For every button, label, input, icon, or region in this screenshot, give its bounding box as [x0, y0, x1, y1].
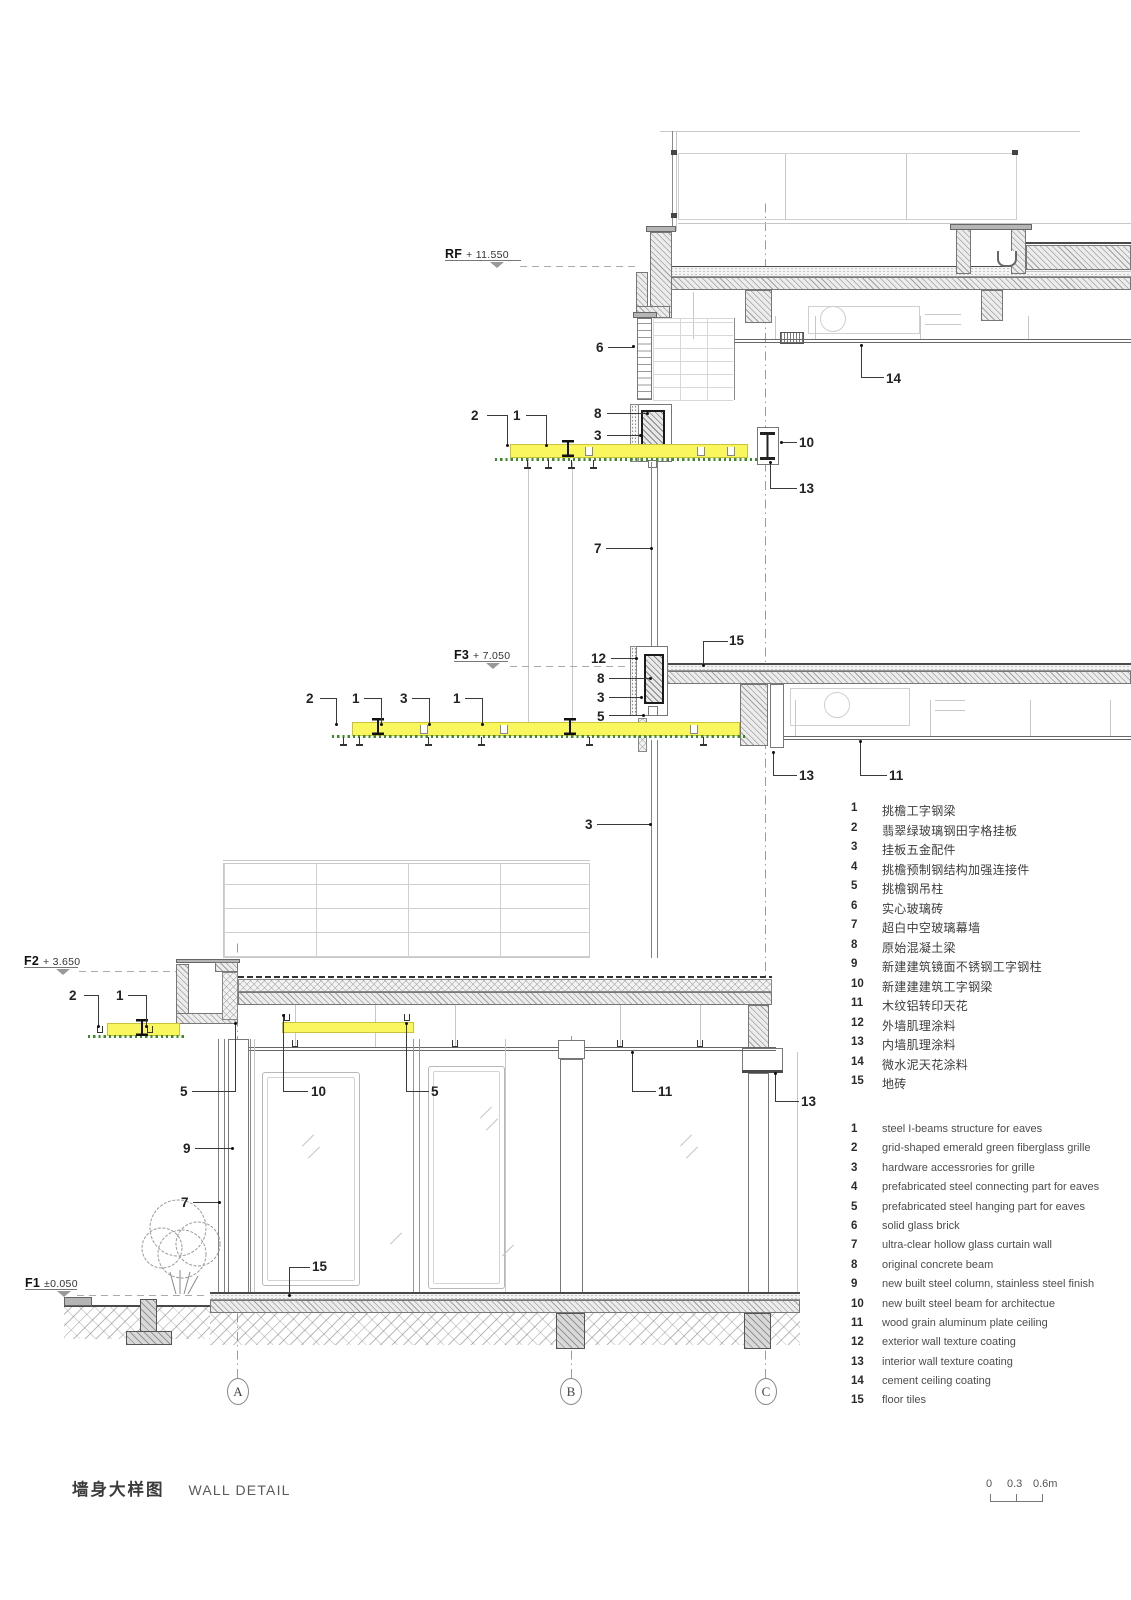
callout-leader [482, 698, 483, 725]
scale-label-0: 0 [986, 1478, 992, 1490]
curtain-wall [651, 740, 658, 958]
wall-detail-drawing: RF+ 11.550 F3+ 7.050 F2+ 3.650 F1±0.050 … [0, 0, 1131, 1600]
callout-leader [861, 345, 862, 378]
i-beam [562, 440, 574, 457]
duct [790, 688, 910, 726]
callout-leader [862, 377, 884, 378]
curb [64, 1297, 92, 1306]
legend-item-number: 4 [851, 861, 882, 873]
legend-item-text: 木纹铝转印天花 [882, 997, 968, 1014]
callout-label: 8 [597, 671, 605, 686]
legend-item-number: 8 [851, 1259, 882, 1271]
callout-leader [235, 1024, 236, 1092]
drawing-shape [404, 1014, 410, 1021]
grille-line [495, 458, 761, 461]
eave-highlight [352, 722, 740, 736]
callout-leader [364, 698, 382, 699]
callout-dot [631, 1051, 634, 1054]
callout-label: 2 [471, 408, 479, 423]
legend-item: 3挂板五金配件 [851, 841, 1131, 861]
drawing-shape [797, 1052, 798, 1293]
legend-item-text: 内墙肌理涂料 [882, 1036, 956, 1053]
callout-leader [195, 1148, 232, 1149]
drawing-shape [585, 447, 593, 456]
curtain-wall [651, 462, 658, 648]
callout-dot [639, 434, 642, 437]
roof-beam [981, 290, 1003, 321]
legend-item-number: 14 [851, 1056, 882, 1068]
drawing-shape [505, 1039, 506, 1295]
drawing-shape [930, 700, 931, 736]
drawing-shape [222, 972, 238, 1020]
callout-dot [97, 1025, 100, 1028]
pipe [820, 306, 846, 332]
footing [126, 1331, 172, 1345]
callout-label: 3 [594, 428, 602, 443]
callout-dot [405, 1022, 408, 1025]
drawing-shape [590, 460, 597, 469]
grid-bubble-a: A [227, 1378, 249, 1405]
drawing-shape [433, 1071, 500, 1284]
level-label: F1 [25, 1276, 40, 1290]
callout-leader [773, 752, 774, 776]
title-chinese: 墙身大样图 [72, 1481, 165, 1499]
callout-label: 15 [729, 633, 744, 648]
level-value: + 3.650 [43, 956, 80, 968]
legend-item-text: 翡翠绿玻璃钢田字格挂板 [882, 822, 1017, 839]
callout-dot [642, 714, 645, 717]
drawing-shape [678, 223, 1131, 224]
callout-dot [481, 723, 484, 726]
roof-curb [956, 229, 971, 274]
callout-leader [283, 1091, 308, 1092]
legend-item: 11wood grain aluminum plate ceiling [851, 1317, 1131, 1336]
roof-slab [1026, 245, 1131, 270]
f2-slab [238, 992, 772, 1005]
drawing-shape [697, 447, 705, 456]
callout-leader [289, 1267, 290, 1295]
callout-leader [781, 442, 797, 443]
callout-leader [633, 1091, 656, 1092]
waterproofing [238, 976, 772, 978]
legend-item-text: wood grain aluminum plate ceiling [882, 1317, 1048, 1329]
callout-dot [772, 751, 775, 754]
legend-item: 12外墙肌理涂料 [851, 1017, 1131, 1037]
f3-ceiling [784, 736, 1131, 740]
legend-item: 3hardware accessrories for grille [851, 1162, 1131, 1181]
roof-drain [997, 251, 1017, 267]
level-value: + 7.050 [473, 650, 510, 662]
drawing-shape [935, 700, 965, 701]
legend-item: 2grid-shaped emerald green fiberglass gr… [851, 1142, 1131, 1161]
column-c [748, 1073, 769, 1295]
callout-dot [231, 1147, 234, 1150]
callout-label: 13 [801, 1094, 816, 1109]
callout-leader [776, 1101, 799, 1102]
drawing-shape [390, 1232, 402, 1244]
legend-item-text: original concrete beam [882, 1259, 993, 1271]
legend-item: 5挑檐钢吊柱 [851, 880, 1131, 900]
drawing-shape [617, 1040, 623, 1047]
callout-leader [407, 1091, 429, 1092]
footing [744, 1313, 771, 1349]
grid-bubble-c: C [755, 1378, 777, 1405]
column-c [748, 1005, 769, 1049]
legend-item-text: 挂板五金配件 [882, 841, 956, 858]
callout-label: 11 [658, 1084, 672, 1099]
callout-label: 11 [889, 768, 903, 783]
callout-label: 3 [597, 690, 605, 705]
callout-leader [289, 1267, 310, 1268]
legend-item-text: ultra-clear hollow glass curtain wall [882, 1239, 1052, 1251]
drawing-shape [340, 737, 347, 746]
legend-item-text: new built steel column, stainless steel … [882, 1278, 1094, 1290]
callout-dot [234, 1022, 237, 1025]
callout-leader [320, 698, 337, 699]
floor-slab [210, 1300, 800, 1313]
callout-leader [597, 824, 650, 825]
glass-guardrail [223, 863, 590, 958]
legend-item: 10new built steel beam for architectue [851, 1298, 1131, 1317]
drawing-shape [425, 737, 432, 746]
drawing-shape [1110, 700, 1111, 736]
callout-leader [487, 415, 508, 416]
legend-item: 9新建建筑镜面不锈钢工字钢柱 [851, 958, 1131, 978]
interior-wall [770, 684, 784, 748]
legend-item: 14cement ceiling coating [851, 1375, 1131, 1394]
drawing-shape [680, 1134, 692, 1146]
callout-dot [218, 1201, 221, 1204]
mullion [413, 1039, 420, 1295]
legend-item: 11木纹铝转印天花 [851, 997, 1131, 1017]
legend-item-number: 15 [851, 1075, 882, 1087]
drawing-shape [568, 460, 575, 469]
steel-beam [760, 432, 775, 460]
callout-leader [98, 995, 99, 1026]
legend-item-text: exterior wall texture coating [882, 1336, 1016, 1348]
legend-item: 5prefabricated steel hanging part for ea… [851, 1201, 1131, 1220]
drawing-shape [671, 150, 677, 155]
legend-item-number: 3 [851, 841, 882, 853]
legend-item: 13interior wall texture coating [851, 1356, 1131, 1375]
drawing-title: 墙身大样图WALL DETAIL [72, 1476, 291, 1500]
legend-item: 12exterior wall texture coating [851, 1336, 1131, 1355]
level-label: F2 [24, 954, 39, 968]
callout-leader [507, 415, 508, 446]
drawing-shape [734, 318, 735, 400]
i-beam [564, 718, 576, 735]
drawing-shape [572, 462, 573, 723]
legend-item: 1steel I-beams structure for eaves [851, 1123, 1131, 1142]
legend-item-text: interior wall texture coating [882, 1356, 1013, 1368]
legend-item: 8original concrete beam [851, 1259, 1131, 1278]
callout-dot [282, 1014, 285, 1017]
steel-column [228, 1039, 249, 1295]
legend-item-number: 9 [851, 1278, 882, 1290]
legend-item-number: 6 [851, 1220, 882, 1232]
level-marker-f3: F3+ 7.050 [454, 646, 510, 664]
drawing-shape [785, 154, 786, 220]
legend-item-number: 13 [851, 1356, 882, 1368]
callout-leader [546, 415, 547, 446]
scale-bar [990, 1501, 1043, 1502]
level-value: ±0.050 [44, 1278, 78, 1290]
callout-dot [288, 1294, 291, 1297]
callout-label: 1 [352, 691, 360, 706]
callout-dot [145, 1025, 148, 1028]
callout-dot [769, 461, 772, 464]
callout-leader [770, 488, 797, 489]
ground [210, 1313, 800, 1345]
callout-leader [775, 1074, 776, 1102]
callout-dot [859, 740, 862, 743]
callout-leader [632, 1053, 633, 1092]
callout-leader [609, 715, 643, 716]
i-beam [372, 718, 384, 735]
callout-dot [646, 412, 649, 415]
callout-label: 7 [181, 1195, 189, 1210]
drawing-shape [775, 316, 776, 339]
callout-leader [283, 1016, 284, 1092]
drawing-shape [700, 737, 707, 746]
callout-leader [84, 995, 99, 996]
drawing-shape [920, 316, 921, 339]
drawing-shape [906, 154, 907, 220]
drawing-shape [452, 1040, 458, 1047]
drawing-shape [558, 1040, 585, 1059]
gutter [176, 964, 189, 1018]
callout-dot [780, 441, 783, 444]
legend-chinese: 1挑檐工字钢梁2翡翠绿玻璃钢田字格挂板3挂板五金配件4挑檐预制钢结构加强连接件5… [851, 802, 1131, 1095]
roof-slab [670, 277, 1131, 290]
callout-leader [406, 1024, 407, 1092]
drawing-shape [420, 725, 428, 734]
legend-item-number: 14 [851, 1375, 882, 1387]
callout-dot [506, 444, 509, 447]
legend-item: 13内墙肌理涂料 [851, 1036, 1131, 1056]
level-line-f2 [79, 971, 178, 972]
callout-leader [381, 698, 382, 725]
legend-item-text: grid-shaped emerald green fiberglass gri… [882, 1142, 1091, 1154]
callout-leader [607, 435, 640, 436]
callout-label: 14 [886, 371, 901, 386]
callout-label: 8 [594, 406, 602, 421]
callout-dot [428, 723, 431, 726]
legend-item-number: 4 [851, 1181, 882, 1193]
insulation [238, 979, 772, 992]
legend-item-number: 7 [851, 1239, 882, 1251]
legend-item: 6solid glass brick [851, 1220, 1131, 1239]
callout-dot [635, 657, 638, 660]
drawing-shape [524, 460, 531, 469]
callout-dot [545, 444, 548, 447]
callout-label: 13 [799, 768, 814, 783]
drawing-shape [1026, 242, 1131, 244]
legend-item-text: 新建建筑镜面不锈钢工字钢柱 [882, 958, 1042, 975]
legend-item-number: 11 [851, 997, 882, 1009]
shrub-icon [136, 1188, 224, 1298]
drawing-shape [292, 1040, 298, 1047]
legend-item-number: 11 [851, 1317, 882, 1329]
rf-ceiling [735, 339, 1131, 343]
callout-dot [649, 823, 652, 826]
drawing-shape [925, 314, 961, 315]
legend-item-text: solid glass brick [882, 1220, 960, 1232]
drawing-shape [254, 1039, 255, 1295]
drawing-shape [690, 725, 698, 734]
callout-dot [335, 723, 338, 726]
callout-label: 5 [180, 1084, 188, 1099]
callout-label: 6 [596, 340, 604, 355]
callout-label: 1 [513, 408, 521, 423]
drawing-shape [478, 737, 485, 746]
level-marker-f2: F2+ 3.650 [24, 952, 80, 970]
callout-label: 10 [799, 435, 814, 450]
callout-leader [860, 775, 887, 776]
drawing-shape [1028, 316, 1029, 339]
callout-dot [702, 664, 705, 667]
drawing-shape [586, 737, 593, 746]
drawing-shape [671, 213, 677, 218]
callout-leader [465, 698, 483, 699]
callout-leader [611, 658, 636, 659]
drawing-shape [686, 1146, 698, 1158]
legend-item-text: 微水泥天花涂料 [882, 1056, 968, 1073]
legend-item-text: 地砖 [882, 1075, 907, 1092]
legend-item-text: 挑檐钢吊柱 [882, 880, 944, 897]
callout-label: 2 [69, 988, 77, 1003]
callout-label: 13 [799, 481, 814, 496]
drawing-shape [223, 860, 590, 861]
legend-item-text: floor tiles [882, 1394, 926, 1406]
scale-label-06m: 0.6m [1033, 1478, 1057, 1490]
legend-item-number: 2 [851, 1142, 882, 1154]
callout-dot [860, 344, 863, 347]
legend-item-text: prefabricated steel hanging part for eav… [882, 1201, 1085, 1213]
drawing-shape [727, 447, 735, 456]
callout-label: 7 [594, 541, 602, 556]
drawing-shape [1030, 700, 1031, 736]
drawing-shape [925, 324, 961, 325]
legend-item-text: hardware accessrories for grille [882, 1162, 1035, 1174]
callout-label: 12 [591, 651, 606, 666]
legend-item-text: 超白中空玻璃幕墙 [882, 919, 980, 936]
footing [556, 1313, 585, 1349]
drawing-shape [528, 462, 529, 723]
callout-dot [380, 723, 383, 726]
legend-item: 15地砖 [851, 1075, 1131, 1095]
legend-item: 6实心玻璃砖 [851, 900, 1131, 920]
callout-leader [607, 413, 647, 414]
callout-label: 5 [597, 709, 605, 724]
callout-leader [606, 548, 651, 549]
glass-brick-wall [637, 318, 652, 400]
legend-item: 9new built steel column, stainless steel… [851, 1278, 1131, 1297]
drawing-shape [660, 131, 1080, 132]
level-label: F3 [454, 648, 469, 662]
legend-item: 14微水泥天花涂料 [851, 1056, 1131, 1076]
legend-item-number: 6 [851, 900, 882, 912]
legend-item-text: prefabricated steel connecting part for … [882, 1181, 1099, 1193]
pipe [824, 692, 850, 718]
callout-leader [609, 678, 650, 679]
callout-leader [608, 347, 634, 348]
legend-item-text: 挑檐预制钢结构加强连接件 [882, 861, 1030, 878]
legend-item-number: 2 [851, 822, 882, 834]
callout-leader [703, 641, 704, 666]
callout-leader [770, 462, 771, 489]
column-b [560, 1059, 583, 1295]
callout-dot [774, 1072, 777, 1075]
callout-dot [650, 547, 653, 550]
legend-item-number: 5 [851, 880, 882, 892]
drawing-shape [500, 725, 508, 734]
callout-label: 9 [183, 1141, 191, 1156]
callout-leader [609, 697, 641, 698]
callout-leader [412, 698, 430, 699]
level-line-rf [520, 266, 637, 267]
concrete-beam [644, 654, 664, 704]
grille-line [332, 735, 746, 738]
legend-item-text: 实心玻璃砖 [882, 900, 944, 917]
drawing-shape [697, 1040, 703, 1047]
legend-item-text: cement ceiling coating [882, 1375, 991, 1387]
legend-item-number: 10 [851, 978, 882, 990]
footing [140, 1299, 157, 1332]
callout-dot [640, 696, 643, 699]
f2-ceiling [245, 1047, 776, 1051]
level-marker-f1: F1±0.050 [25, 1274, 78, 1292]
callout-leader [192, 1091, 236, 1092]
callout-leader [146, 995, 147, 1026]
legend-item-number: 7 [851, 919, 882, 931]
legend-item: 7ultra-clear hollow glass curtain wall [851, 1239, 1131, 1258]
grid-bubble-b: B [560, 1378, 582, 1405]
callout-leader [526, 415, 547, 416]
drawing-shape [648, 706, 658, 716]
legend-item-text: steel I-beams structure for eaves [882, 1123, 1042, 1135]
legend-english: 1steel I-beams structure for eaves2grid-… [851, 1123, 1131, 1414]
f3-slab [662, 671, 1131, 684]
legend-item: 4prefabricated steel connecting part for… [851, 1181, 1131, 1200]
title-english: WALL DETAIL [189, 1482, 291, 1498]
glass-brick-elevation [653, 318, 733, 401]
drawing-shape [250, 1039, 251, 1295]
drawing-shape [267, 1077, 355, 1281]
legend-item-number: 15 [851, 1394, 882, 1406]
callout-dot [632, 345, 635, 348]
legend-item-number: 9 [851, 958, 882, 970]
legend-item-number: 12 [851, 1336, 882, 1348]
legend-item: 1挑檐工字钢梁 [851, 802, 1131, 822]
drawing-shape [545, 460, 552, 469]
steel-beam-highlight [282, 1022, 414, 1033]
legend-item-number: 1 [851, 802, 882, 814]
callout-leader [773, 775, 797, 776]
drawing-shape [935, 710, 965, 711]
legend-item-number: 8 [851, 939, 882, 951]
legend-item: 10新建建建筑工字钢梁 [851, 978, 1131, 998]
callout-label: 1 [116, 988, 124, 1003]
callout-label: 2 [306, 691, 314, 706]
legend-item: 2翡翠绿玻璃钢田字格挂板 [851, 822, 1131, 842]
callout-leader [193, 1202, 219, 1203]
legend-item-text: 挑檐工字钢梁 [882, 802, 956, 819]
callout-label: 1 [453, 691, 461, 706]
legend-item: 4挑檐预制钢结构加强连接件 [851, 861, 1131, 881]
legend-item-number: 10 [851, 1298, 882, 1310]
callout-label: 10 [311, 1084, 326, 1099]
